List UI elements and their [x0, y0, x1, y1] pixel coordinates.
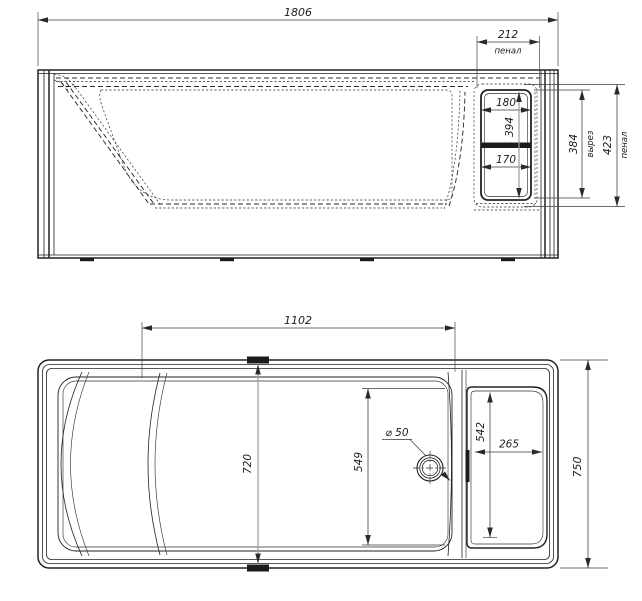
dim-note-cutout: вырез: [586, 130, 596, 157]
overflow-slot: [466, 450, 470, 482]
dim-shelf-opening-height: 542: [475, 393, 497, 538]
dim-label-basin-length: 1102: [284, 314, 312, 327]
dim-label-cutout-inner-height: 394: [504, 117, 516, 137]
bathtub-drawing: 1806 212 пенал 180 170 394: [0, 0, 642, 601]
dim-label-shelf-depth: 265: [499, 439, 519, 451]
dim-overall-length: 1806: [38, 6, 558, 66]
dim-shelf-height: 423 пенал: [602, 85, 630, 207]
dim-label-overall-width: 750: [571, 457, 584, 478]
tub-body-outline: [38, 70, 558, 258]
dim-note-shelf-width: пенал: [495, 47, 523, 57]
dim-label-upper-cutout-width: 180: [496, 97, 516, 109]
dim-label-overall-length: 1806: [284, 6, 312, 19]
dim-lower-cutout-width: 170: [481, 154, 531, 167]
basin-opening: [58, 370, 466, 558]
dim-cutout-height: 384 вырез: [568, 90, 596, 198]
dim-shelf-width: 212 пенал: [477, 29, 540, 88]
side-view: 1806 212 пенал 180 170 394: [38, 6, 630, 261]
dim-label-cutout-height: 384: [568, 134, 580, 154]
dim-overall-width: 750: [560, 360, 608, 568]
dim-basin-width: 720: [242, 365, 258, 564]
dim-note-shelf-height: пенал: [620, 131, 630, 159]
technical-drawing-sheet: 1806 212 пенал 180 170 394: [0, 0, 642, 601]
dim-label-shelf-width: 212: [498, 29, 518, 41]
hidden-bowl-profile: [54, 74, 540, 209]
shelf-recess: [466, 387, 548, 548]
dim-label-shelf-opening-height: 542: [475, 422, 487, 442]
dim-label-drain-diameter: ⌀ 50: [385, 427, 408, 439]
dim-label-basin-width: 720: [242, 454, 254, 474]
drain: ⌀ 50: [382, 427, 450, 485]
dim-upper-cutout-width: 180: [481, 97, 531, 110]
dim-label-lower-cutout-width: 170: [496, 154, 516, 166]
shelf-divider: [481, 143, 531, 149]
plan-view: ⌀ 50 1102 720 549 542: [38, 314, 608, 572]
dim-label-shelf-height: 423: [602, 135, 614, 155]
dim-label-floor-length: 549: [353, 452, 365, 472]
